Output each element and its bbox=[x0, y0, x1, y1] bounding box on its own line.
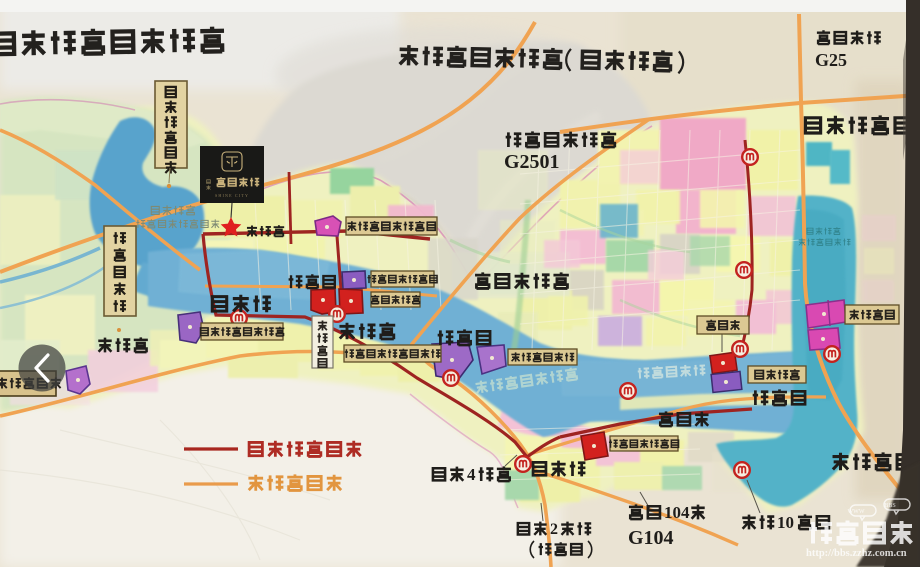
svg-text:4: 4 bbox=[467, 465, 476, 484]
svg-text:http://bbs.zzhz.com.cn: http://bbs.zzhz.com.cn bbox=[806, 548, 907, 559]
svg-text:2: 2 bbox=[550, 521, 558, 538]
svg-text:G2501: G2501 bbox=[504, 151, 560, 173]
svg-text:BBS: BBS bbox=[884, 503, 895, 509]
svg-text:G104: G104 bbox=[628, 527, 674, 549]
svg-text:WWW: WWW bbox=[848, 509, 865, 515]
svg-text:SHINE CITY: SHINE CITY bbox=[215, 193, 249, 198]
svg-text:10: 10 bbox=[777, 513, 794, 532]
svg-text:104: 104 bbox=[664, 503, 690, 522]
svg-text:G25: G25 bbox=[815, 50, 847, 70]
